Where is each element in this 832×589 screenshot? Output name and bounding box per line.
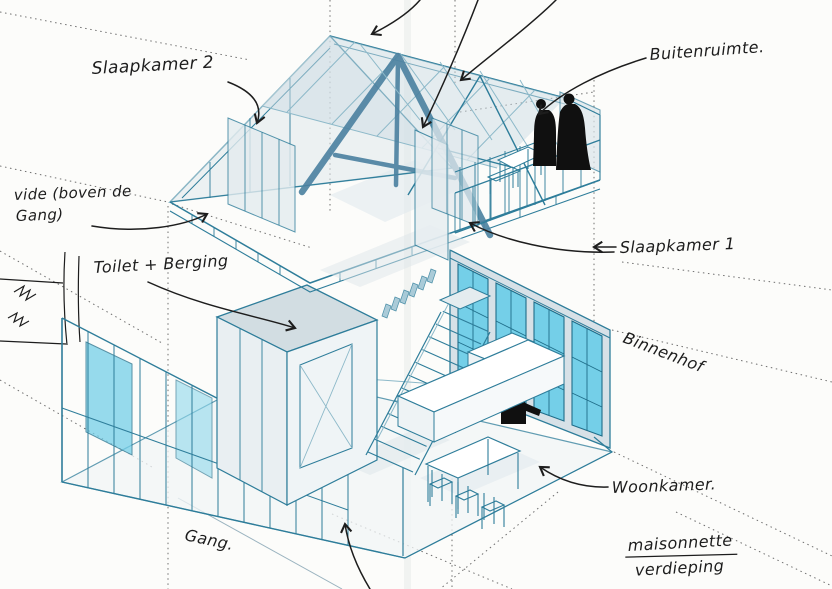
label-binnenhof: Binnenhof (621, 328, 709, 377)
sketch-fragment (0, 252, 80, 345)
toilet-berging-block (217, 285, 377, 505)
label-slaapkamer2: Slaapkamer 2 (91, 53, 214, 79)
label-maisonnette-verdieping: maisonnette verdieping (624, 530, 738, 580)
label-gang: Gang. (183, 525, 235, 554)
label-slaapkamer1: Slaapkamer 1 (619, 234, 735, 257)
top-leader-arrow (372, 0, 420, 34)
label-vide-line1: vide (boven de (14, 182, 132, 204)
glass-panel (86, 342, 132, 455)
vide-leader (92, 214, 207, 229)
top-leader-arrow (461, 0, 556, 80)
label-toilet-berging: Toilet + Berging (93, 251, 229, 277)
label-woonkamer: Woonkamer. (611, 474, 716, 497)
label-vide-line2: Gang) (16, 205, 64, 225)
label-verdieping: verdieping (635, 556, 725, 580)
label-buitenruimte: Buitenruimte. (649, 37, 765, 64)
window (572, 321, 602, 436)
lower-floor (62, 250, 612, 558)
axonometric-sketch: Slaapkamer 2 Buitenruimte. vide (boven d… (0, 0, 832, 589)
label-maisonnette: maisonnette (627, 531, 733, 555)
sketch-page: Slaapkamer 2 Buitenruimte. vide (boven d… (0, 0, 832, 589)
upper-floor (170, 36, 600, 292)
